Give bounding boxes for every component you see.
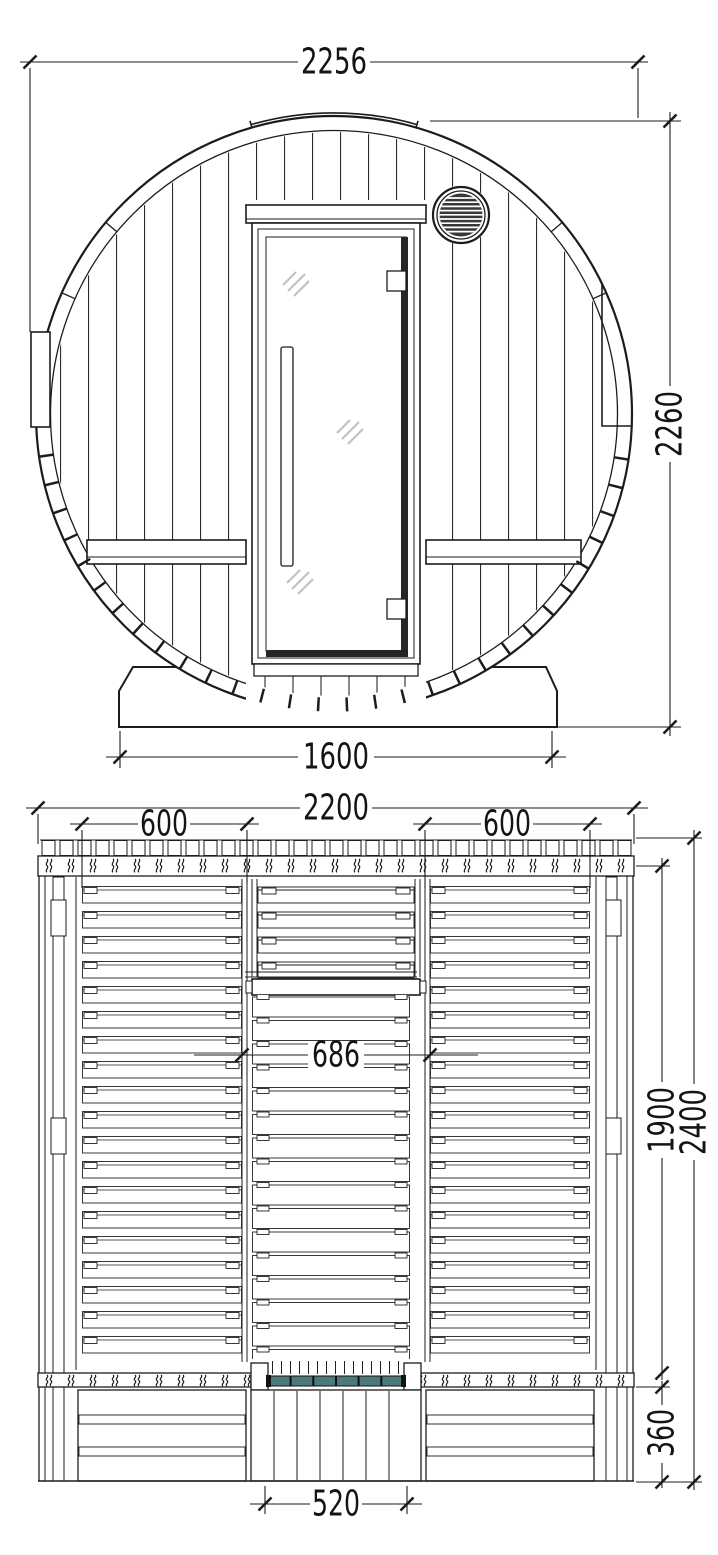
- dim-plan-door-width: 520: [250, 1484, 422, 1525]
- door-head-casing: [246, 205, 426, 223]
- side-shelf-left: [87, 540, 246, 564]
- plan-front-wall-section: [38, 840, 634, 876]
- porch: [38, 1390, 634, 1481]
- dim-label-overall-depth: 2400: [674, 1089, 715, 1155]
- dim-plan-porch-depth: 360: [636, 1381, 683, 1489]
- dim-label-left-bench-width: 600: [140, 804, 188, 845]
- door-top-rail: [268, 1361, 404, 1374]
- porch-deck-left: [78, 1390, 246, 1481]
- dim-label-front-overall-width: 2256: [301, 42, 367, 83]
- porch-deck-right: [426, 1390, 594, 1481]
- door-sill: [254, 664, 418, 676]
- stave-ends-row: [40, 840, 632, 856]
- drawing-sheet: 2256 2260 1600: [0, 0, 718, 1555]
- dim-label-front-overall-height: 2260: [650, 391, 691, 457]
- dim-label-plan-overall-width: 2200: [303, 788, 369, 829]
- door-leaf-edge: [401, 237, 408, 651]
- door-jamb-right: [404, 1363, 421, 1390]
- wall-batten-left: [53, 877, 64, 1481]
- door-handle: [281, 347, 293, 566]
- dim-label-right-bench-width: 600: [483, 804, 531, 845]
- vent-grille: [432, 186, 491, 245]
- door-glass-top-view: [266, 1375, 406, 1387]
- plan-view: 2200 600 600 686: [26, 788, 715, 1525]
- plan-rear-wall-section: [38, 1361, 634, 1390]
- dim-plan-overall-depth: 2400: [636, 830, 715, 1490]
- dim-plan-overall-width: 2200: [26, 788, 648, 845]
- door: [246, 205, 426, 676]
- door-hinge-top: [387, 271, 406, 291]
- porch-door-planks: [251, 1390, 421, 1481]
- door-hinge-bottom: [387, 599, 406, 619]
- door-leaf-bottom-edge: [266, 650, 408, 657]
- dim-label-porch-depth: 360: [642, 1409, 683, 1457]
- side-shelf-right: [426, 540, 581, 564]
- front-view: 2256 2260 1600: [20, 42, 691, 778]
- sauna-drawing: 2256 2260 1600: [0, 0, 718, 1555]
- dim-label-aisle-width: 686: [312, 1035, 360, 1076]
- dim-label-door-width: 520: [312, 1484, 360, 1525]
- door-jamb-left: [251, 1363, 268, 1390]
- dim-label-front-base-width: 1600: [303, 737, 369, 778]
- crest-trim-left: [31, 332, 50, 427]
- wall-batten-right: [606, 877, 617, 1481]
- dim-front-base-width: 1600: [106, 731, 566, 778]
